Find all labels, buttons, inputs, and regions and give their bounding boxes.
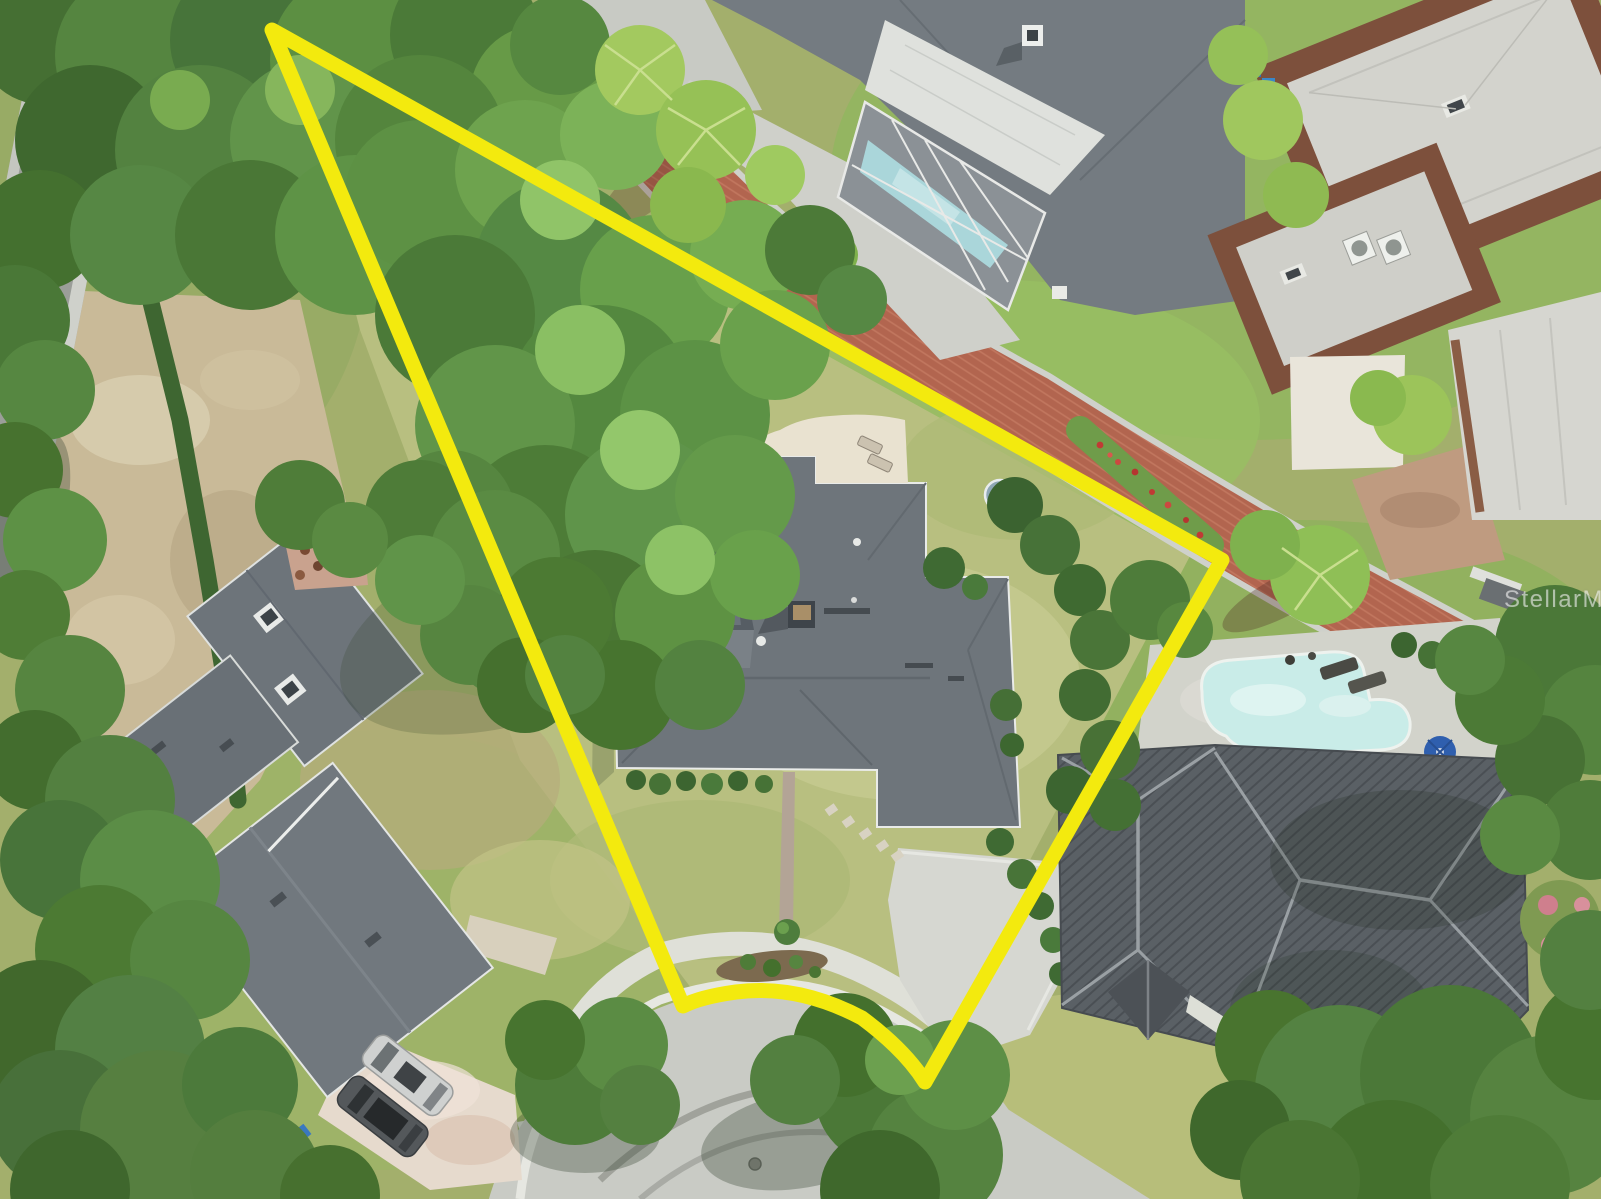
- aerial-photo-canvas: [0, 0, 1601, 1199]
- aerial-photo: StellarMLS: [0, 0, 1601, 1199]
- side-building-roof: [1448, 292, 1601, 520]
